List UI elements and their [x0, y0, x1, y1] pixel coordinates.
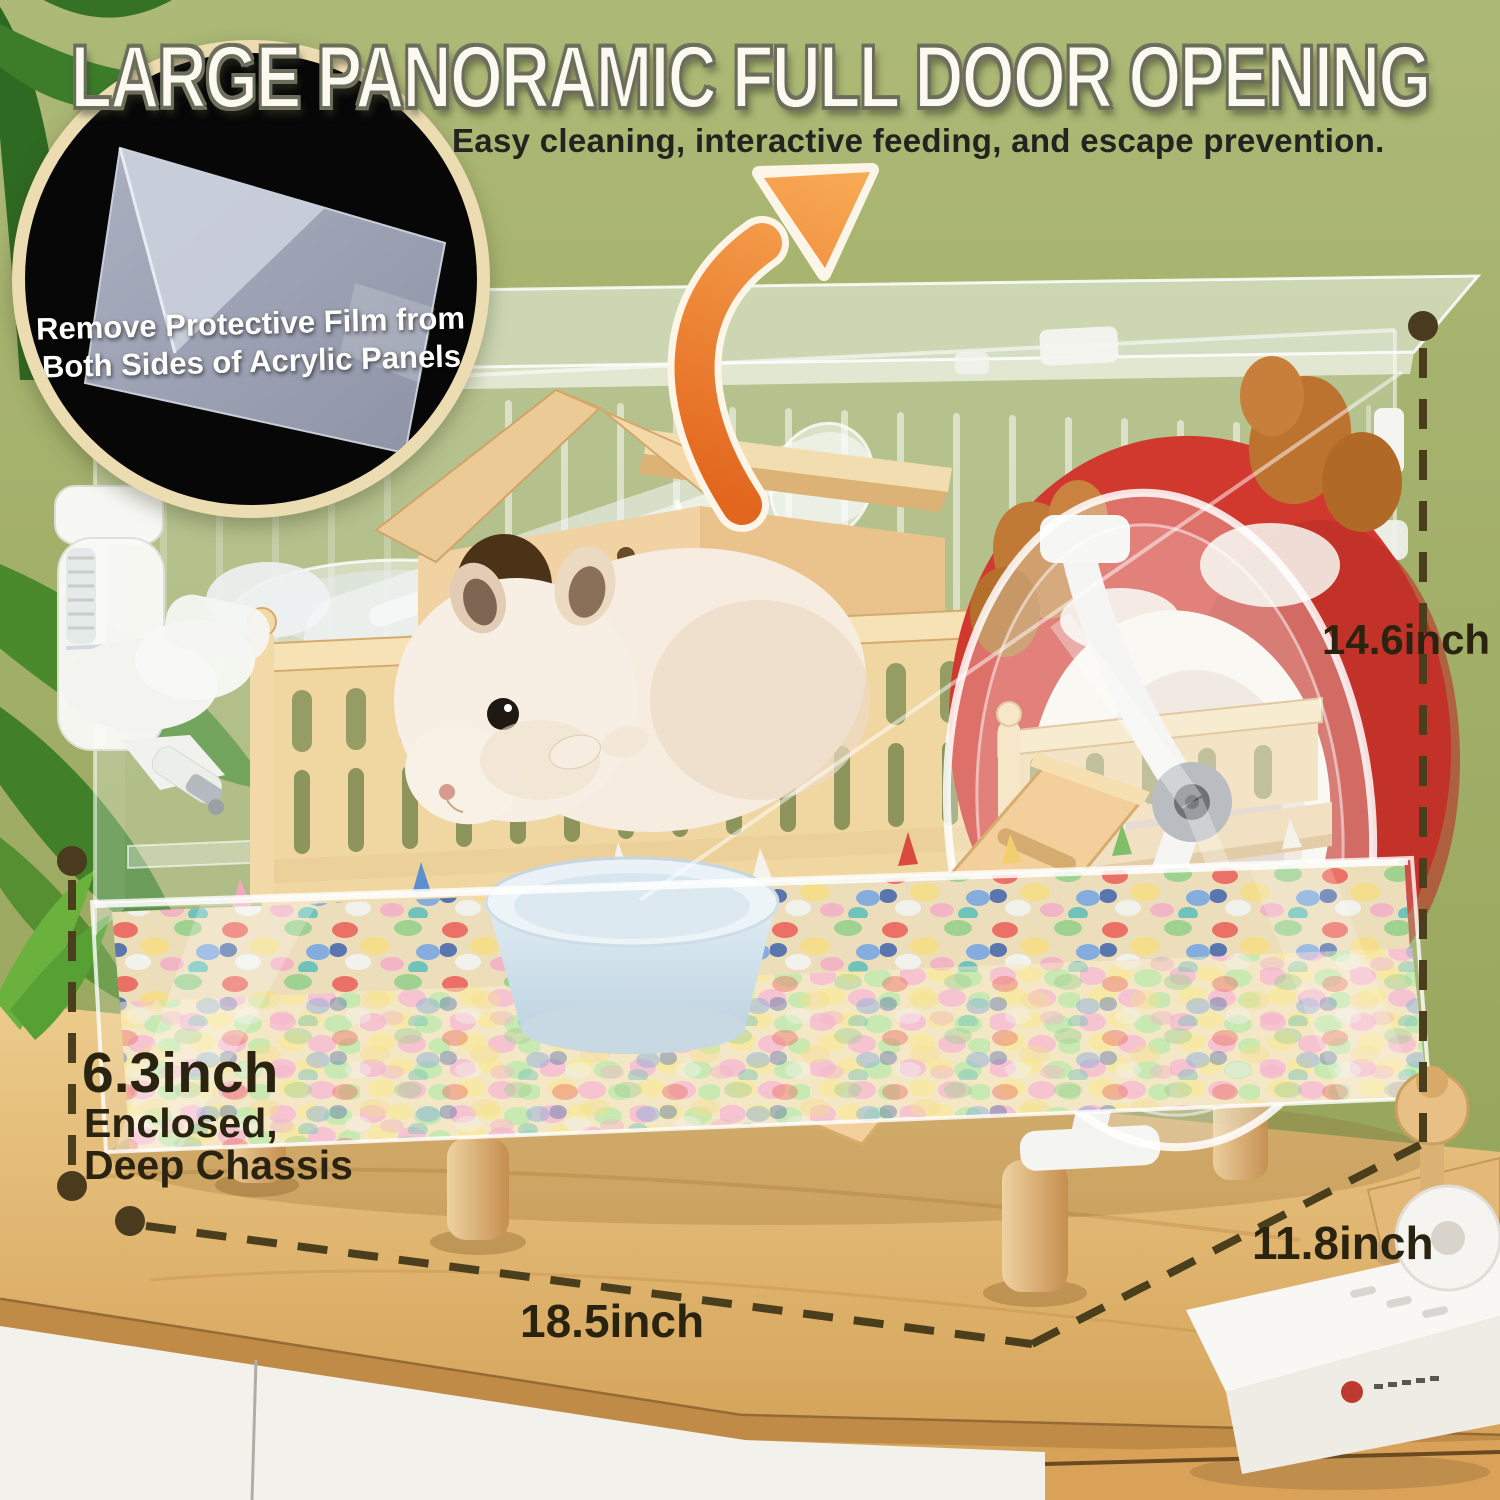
subheadline: Easy cleaning, interactive feeding, and …: [452, 122, 1385, 160]
height-dimension-label: 14.6inch: [1322, 616, 1490, 664]
lid-hinge: [1039, 326, 1119, 366]
headline: LARGE PANORAMIC FULL DOOR OPENING: [60, 26, 1440, 129]
product-image: Remove Protective Film from Both Sides o…: [0, 0, 1500, 1500]
chassis-note-line1: Enclosed,: [84, 1100, 278, 1147]
chassis-note-line2: Deep Chassis: [84, 1142, 353, 1189]
depth-dimension-label: 11.8inch: [1252, 1216, 1434, 1270]
chassis-height-label: 6.3inch: [82, 1040, 278, 1106]
badge-text: Remove Protective Film from Both Sides o…: [24, 299, 478, 387]
width-dimension-label: 18.5inch: [520, 1294, 704, 1348]
box-logo: [1341, 1381, 1363, 1403]
